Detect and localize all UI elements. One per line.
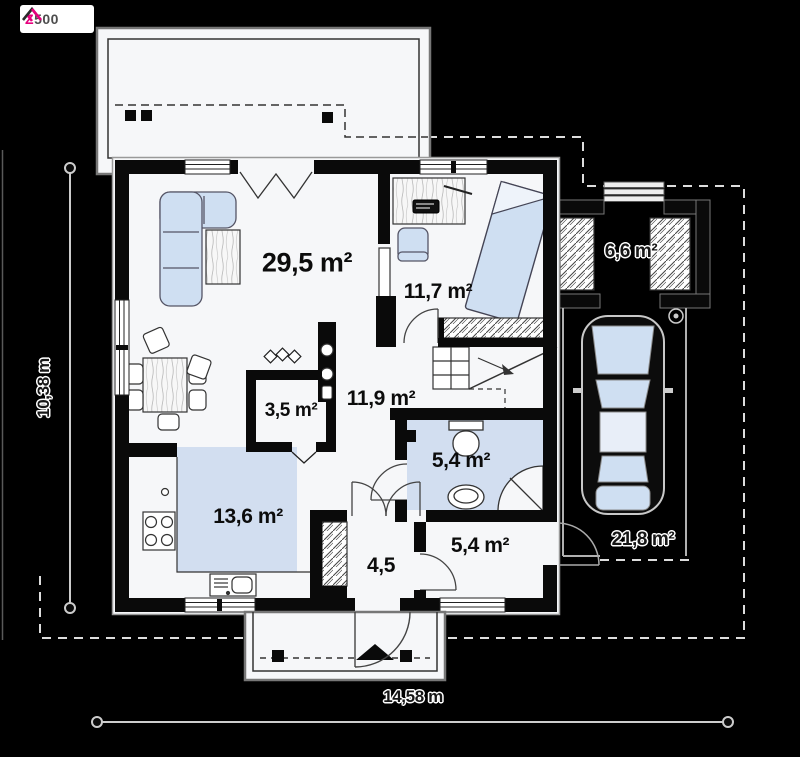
terrace [97,28,430,174]
fireplace-flames-icon [264,348,301,363]
dimension-label-depth: 10,38 m [34,358,54,418]
car-top-view-icon [573,316,673,514]
toilet [449,421,483,430]
floor-plan-page: 29,5 m² 11,7 m² 3,5 m² 11,9 m² 5,4 m² 13… [0,0,800,757]
entrance-porch [245,612,445,680]
room-label-utility: 5,4 m² [451,534,509,558]
window [115,300,129,395]
wardrobe [438,318,550,338]
room-label-hall: 11,9 m² [347,387,415,411]
room-label-storage: 6,6 m² [605,241,658,263]
porch-column [272,650,284,662]
room-label-living: 29,5 m² [262,248,352,279]
kitchen-sink [210,574,256,596]
terrace-column [141,110,152,121]
room-label-bedroom: 11,7 m² [404,280,472,304]
room-label-kitchen: 13,6 m² [213,505,283,529]
window [440,598,505,612]
vestibule-wardrobe [322,510,347,598]
dimension-label-width: 14,58 m [383,687,443,707]
room-label-bathroom: 5,4 m² [432,449,490,473]
floor-plan-graphic [0,0,800,757]
room-label-vestibule: 4,5 [367,554,395,578]
carport [557,308,686,565]
porch-column [400,650,412,662]
room-label-pantry: 3,5 m² [265,400,318,422]
roof-icon [20,5,44,23]
window [185,598,255,612]
room-label-carport: 21,8 m² [612,529,675,551]
brand-logo: Z 500 [20,5,94,33]
shelf-unit [560,218,594,290]
window [420,160,487,174]
terrace-column [322,112,333,123]
coffee-table [206,230,240,284]
window [185,160,230,174]
terrace-column [125,110,136,121]
